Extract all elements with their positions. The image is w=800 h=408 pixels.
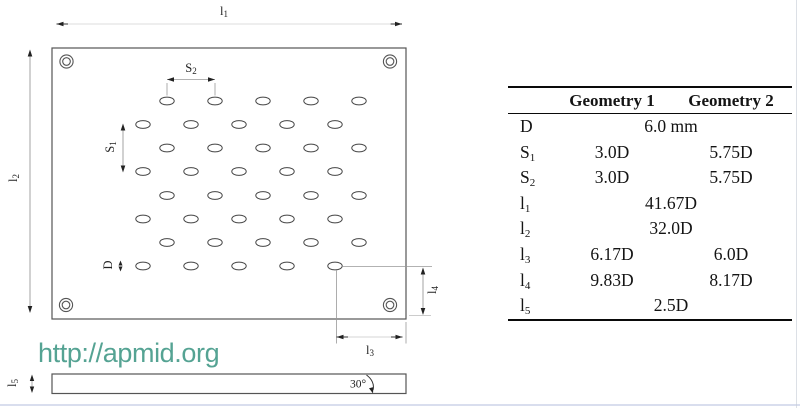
dim-label-l3-sub: 3 xyxy=(369,348,374,358)
dim-l2 xyxy=(28,50,33,314)
dim-label-l4-base: l xyxy=(425,291,439,294)
chamfer-angle-text: 30° xyxy=(350,378,366,390)
geometry1-value: 3.0D xyxy=(552,140,672,166)
shared-value: 2.5D xyxy=(611,293,731,319)
param-sub: 4 xyxy=(525,280,531,292)
watermark-url: http://apmid.org xyxy=(38,338,219,369)
dim-label-l5-base: l xyxy=(5,384,19,387)
dim-label-s1: S1 xyxy=(104,141,118,152)
table-row-l1: l1 41.67D xyxy=(508,191,792,217)
table-row-l2: l2 32.0D xyxy=(508,216,792,242)
dim-l5 xyxy=(30,375,34,394)
shared-value: 41.67D xyxy=(611,191,731,217)
col-header-geometry-2: Geometry 2 xyxy=(671,88,791,113)
dim-label-d: D xyxy=(102,260,115,269)
table-row-l5: l5 2.5D xyxy=(508,293,792,319)
chamfer-angle-label: 30° xyxy=(350,379,366,391)
geometry2-value: 6.0D xyxy=(671,242,791,268)
col-header-geometry-1: Geometry 1 xyxy=(552,88,672,113)
dim-label-l1-sub: 1 xyxy=(223,9,228,19)
table-row-l4: l4 9.83D 8.17D xyxy=(508,268,792,294)
shared-value: 6.0 mm xyxy=(611,114,731,140)
dim-label-l1: l1 xyxy=(220,5,228,19)
geometry1-value: 6.17D xyxy=(552,242,672,268)
dim-label-s2-sub: 2 xyxy=(192,66,197,76)
dim-label-l4-sub: 4 xyxy=(430,286,440,291)
figure-canvas: l1 l2 S2 S1 D l4 l3 l5 30° http://apmid.… xyxy=(0,0,800,408)
dim-label-l4: l4 xyxy=(426,286,440,294)
dim-label-s2-base: S xyxy=(185,61,192,75)
geometry2-value: 8.17D xyxy=(671,268,791,294)
dim-label-s2: S2 xyxy=(185,62,196,76)
geometry1-value: 9.83D xyxy=(552,268,672,294)
dim-label-l3: l3 xyxy=(366,344,374,358)
dim-label-d-base: D xyxy=(101,260,115,269)
table-header-row: Geometry 1 Geometry 2 xyxy=(508,88,792,114)
geometry-table: Geometry 1 Geometry 2 D 6.0 mm S1 3.0D 5… xyxy=(508,86,792,321)
param-sub: 1 xyxy=(530,152,536,164)
table-row-s1: S1 3.0D 5.75D xyxy=(508,140,792,166)
param-base: S xyxy=(520,167,530,187)
param-sub: 5 xyxy=(525,305,531,317)
dim-label-l5-sub: 5 xyxy=(10,379,20,384)
plate-outline xyxy=(52,48,406,319)
dim-label-l2: l2 xyxy=(7,174,21,182)
param-sub: 3 xyxy=(525,254,531,266)
shared-value: 32.0D xyxy=(611,216,731,242)
param-base: D xyxy=(520,116,533,136)
geometry2-value: 5.75D xyxy=(671,140,791,166)
dim-label-s1-sub: 1 xyxy=(108,141,118,146)
dim-label-l2-base: l xyxy=(6,179,20,182)
param-sub: 2 xyxy=(530,177,536,189)
geometry1-value: 3.0D xyxy=(552,165,672,191)
param-sub: 2 xyxy=(525,228,531,240)
param-label: l5 xyxy=(520,293,530,325)
param-base: S xyxy=(520,142,530,162)
dim-label-l2-sub: 2 xyxy=(11,174,21,179)
dim-l1 xyxy=(57,22,403,27)
param-sub: 1 xyxy=(525,203,531,215)
image-edge-bottom xyxy=(0,404,800,406)
table-row-s2: S2 3.0D 5.75D xyxy=(508,165,792,191)
image-edge-right xyxy=(796,0,797,408)
dim-label-l5: l5 xyxy=(6,379,20,387)
geometry2-value: 5.75D xyxy=(671,165,791,191)
table-row-d: D 6.0 mm xyxy=(508,114,792,140)
dim-label-s1-base: S xyxy=(103,146,117,153)
table-row-l3: l3 6.17D 6.0D xyxy=(508,242,792,268)
